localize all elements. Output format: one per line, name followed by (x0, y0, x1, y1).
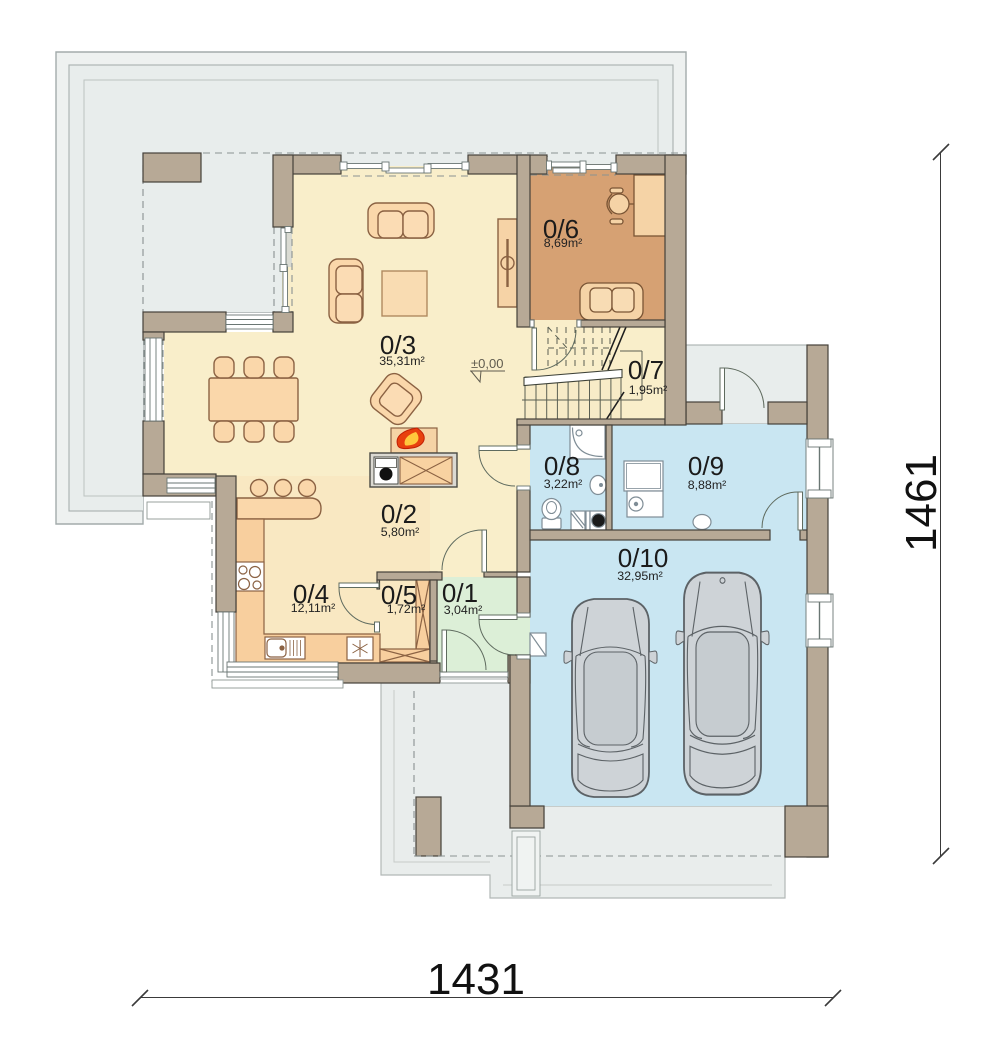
svg-text:32,95m²: 32,95m² (617, 569, 662, 583)
svg-text:1461: 1461 (897, 454, 946, 552)
svg-text:5,80m²: 5,80m² (381, 525, 420, 539)
svg-text:0/7: 0/7 (628, 355, 664, 385)
svg-text:±0,00: ±0,00 (471, 356, 503, 371)
svg-text:3,04m²: 3,04m² (444, 603, 483, 617)
svg-text:1431: 1431 (427, 955, 525, 1004)
svg-text:3,22m²: 3,22m² (544, 477, 583, 491)
svg-text:8,69m²: 8,69m² (544, 236, 583, 250)
svg-text:1,72m²: 1,72m² (387, 602, 426, 616)
svg-text:35,31m²: 35,31m² (379, 354, 424, 368)
svg-text:0/9: 0/9 (688, 451, 724, 481)
svg-text:12,11m²: 12,11m² (291, 601, 336, 615)
svg-text:1,95m²: 1,95m² (629, 383, 668, 397)
svg-text:8,88m²: 8,88m² (688, 478, 727, 492)
